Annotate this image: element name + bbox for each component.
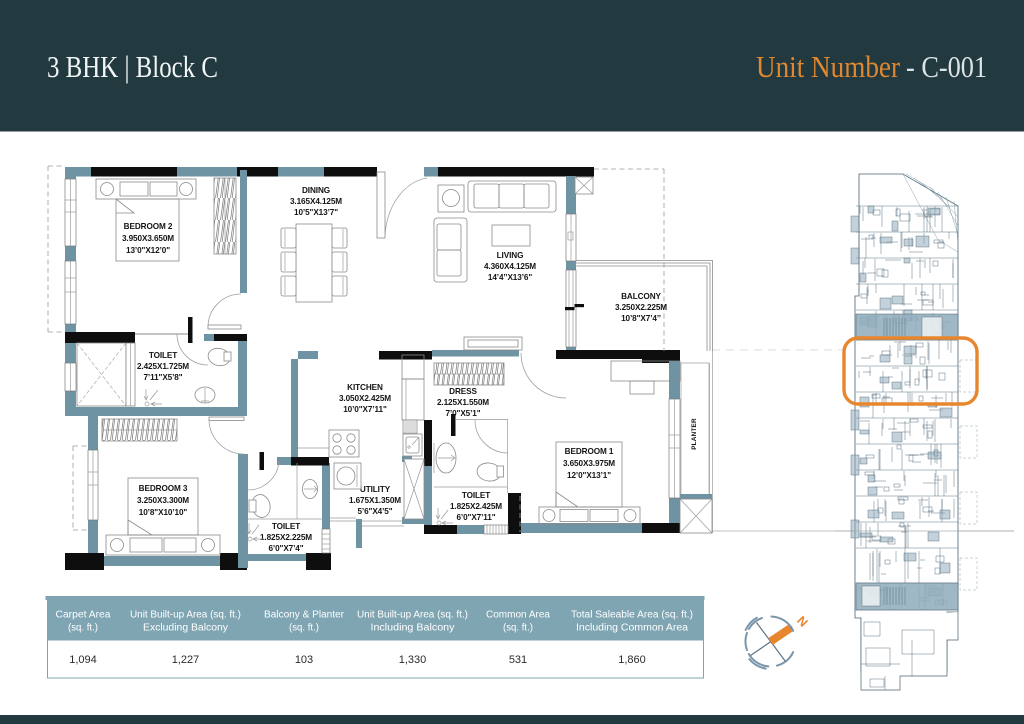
svg-text:DINING: DINING	[302, 186, 330, 195]
svg-text:6’0"X7’4": 6’0"X7’4"	[268, 544, 303, 553]
svg-text:TOILET: TOILET	[149, 351, 177, 360]
svg-text:LIVING: LIVING	[497, 251, 524, 260]
svg-text:10’8"X7’4’’: 10’8"X7’4’’	[621, 314, 661, 323]
svg-text:BEDROOM 3: BEDROOM 3	[139, 484, 188, 493]
svg-text:7’11"X5’8": 7’11"X5’8"	[143, 373, 182, 382]
svg-text:2.125X1.550M: 2.125X1.550M	[437, 398, 489, 407]
svg-text:1,227: 1,227	[172, 654, 200, 666]
svg-text:3.050X2.425M: 3.050X2.425M	[339, 394, 391, 403]
svg-text:(sq. ft.): (sq. ft.)	[289, 623, 319, 634]
svg-text:3.250X3.300M: 3.250X3.300M	[137, 496, 189, 505]
svg-text:Unit Number: Unit Number	[756, 49, 901, 84]
svg-text:Unit Built-up Area (sq. ft.): Unit Built-up Area (sq. ft.)	[130, 610, 241, 621]
svg-text:1,860: 1,860	[618, 654, 646, 666]
svg-text:DRESS: DRESS	[449, 387, 477, 396]
svg-text:1.825X2.425M: 1.825X2.425M	[450, 502, 502, 511]
svg-text:(sq. ft.): (sq. ft.)	[68, 623, 98, 634]
svg-text:3.650X3.975M: 3.650X3.975M	[563, 459, 615, 468]
svg-text:10’0"X7’11": 10’0"X7’11"	[343, 405, 387, 414]
svg-text:Total Saleable Area (sq. ft.): Total Saleable Area (sq. ft.)	[571, 610, 693, 621]
svg-text:- C-001: - C-001	[906, 49, 987, 84]
svg-text:10’8"X10’10": 10’8"X10’10"	[139, 508, 188, 517]
svg-text:TOILET: TOILET	[462, 491, 490, 500]
svg-text:(sq. ft.): (sq. ft.)	[503, 623, 533, 634]
svg-text:PLANTER: PLANTER	[691, 418, 698, 450]
svg-text:Including Common Area: Including Common Area	[576, 623, 688, 634]
svg-text:7’0"X5’1": 7’0"X5’1"	[445, 409, 480, 418]
svg-text:13’0"X12’0": 13’0"X12’0"	[126, 246, 170, 255]
svg-text:1,094: 1,094	[69, 654, 97, 666]
svg-text:12’0"X13’1": 12’0"X13’1"	[567, 471, 611, 480]
svg-text:Carpet Area: Carpet Area	[56, 610, 111, 621]
svg-text:Including Balcony: Including Balcony	[371, 623, 455, 634]
svg-text:14’4’’X13’6": 14’4’’X13’6"	[488, 273, 532, 282]
svg-text:Excluding Balcony: Excluding Balcony	[143, 623, 228, 634]
svg-text:531: 531	[509, 654, 527, 666]
svg-text:3.950X3.650M: 3.950X3.650M	[122, 234, 174, 243]
svg-text:1.825X2.225M: 1.825X2.225M	[260, 533, 312, 542]
svg-text:5’6"X4’5": 5’6"X4’5"	[357, 507, 392, 516]
svg-text:3 BHK | Block C: 3 BHK | Block C	[47, 49, 218, 84]
svg-text:UTILITY: UTILITY	[360, 485, 391, 494]
svg-text:BEDROOM 2: BEDROOM 2	[124, 222, 173, 231]
svg-text:TOILET: TOILET	[272, 522, 300, 531]
svg-text:3.165X4.125M: 3.165X4.125M	[290, 197, 342, 206]
svg-text:6’0"X7’11": 6’0"X7’11"	[456, 513, 495, 522]
svg-text:1.675X1.350M: 1.675X1.350M	[349, 496, 401, 505]
svg-text:Unit Built-up Area (sq. ft.): Unit Built-up Area (sq. ft.)	[357, 610, 468, 621]
svg-text:BALCONY: BALCONY	[621, 292, 661, 301]
svg-text:BEDROOM 1: BEDROOM 1	[565, 447, 614, 456]
svg-text:1,330: 1,330	[399, 654, 427, 666]
svg-text:4.360X4.125M: 4.360X4.125M	[484, 262, 536, 271]
svg-text:KITCHEN: KITCHEN	[347, 383, 383, 392]
svg-text:Balcony & Planter: Balcony & Planter	[264, 610, 345, 621]
svg-text:Common Area: Common Area	[486, 610, 550, 621]
svg-text:2.425X1.725M: 2.425X1.725M	[137, 362, 189, 371]
svg-text:103: 103	[295, 654, 313, 666]
svg-text:3.250X2.225M: 3.250X2.225M	[615, 303, 667, 312]
svg-text:10’5"X13’7": 10’5"X13’7"	[294, 208, 338, 217]
